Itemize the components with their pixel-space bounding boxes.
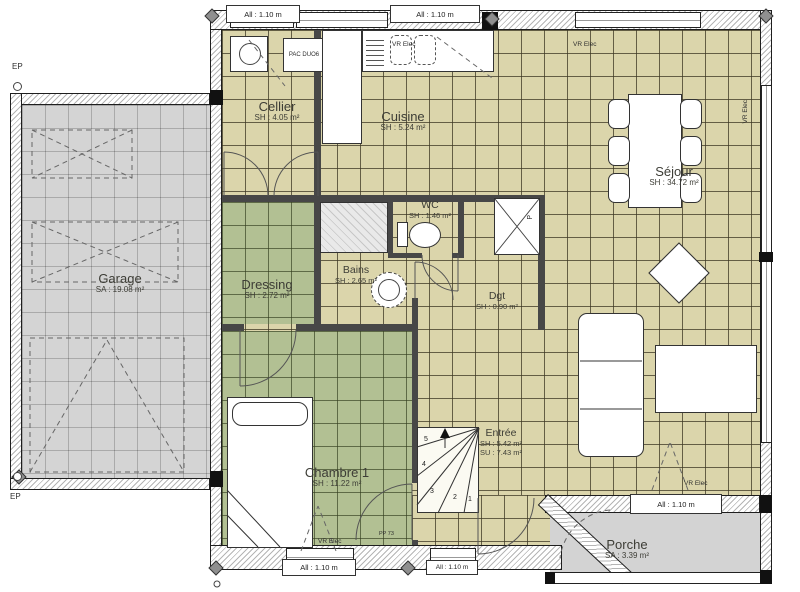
vr-elec-label-sejour-right: VR Elec bbox=[742, 100, 749, 123]
window-sejour-top bbox=[575, 12, 701, 28]
post-top-middle bbox=[482, 12, 498, 30]
toilet-bowl bbox=[409, 222, 441, 248]
room-name: Cuisine bbox=[381, 110, 426, 123]
partition-bains-dgt-stub bbox=[412, 298, 418, 324]
wall-house-front bbox=[210, 545, 562, 570]
room-label-chambre: Chambre 1 SH : 11.22 m² bbox=[305, 466, 369, 489]
window-label-chambre: All : 1.10 m bbox=[282, 559, 356, 576]
post-porche-bottomright bbox=[760, 570, 772, 584]
post-garage-top bbox=[210, 90, 223, 105]
window-cuisine-top bbox=[296, 12, 388, 28]
room-label-bains: Bains SH : 2.65 m² bbox=[335, 265, 377, 285]
toilet-tank bbox=[397, 222, 408, 247]
vr-elec-label-sejour-top: VR Elec bbox=[573, 41, 596, 48]
window-label-top-right: All : 1.10 m bbox=[390, 5, 480, 23]
floor-dressing bbox=[222, 202, 314, 324]
partition-chambre-entree-stub bbox=[412, 540, 418, 545]
washing-machine-drum-icon bbox=[239, 43, 261, 65]
ep-label-bottom: EP bbox=[10, 492, 21, 501]
partition-wc-bottom-a bbox=[388, 253, 422, 258]
wall-garage-bottom bbox=[10, 478, 210, 490]
window-sejour-right bbox=[761, 85, 772, 443]
room-area: SH : 5.42 m² bbox=[480, 439, 522, 448]
room-label-entree: Entrée SH : 5.42 m² SU : 7.43 m² bbox=[480, 428, 522, 457]
dining-chair bbox=[608, 136, 630, 166]
stair-step-4: 4 bbox=[422, 461, 426, 468]
window-label-text: All : 1.10 m bbox=[244, 10, 282, 19]
room-name: WC bbox=[409, 200, 451, 211]
dining-table bbox=[628, 94, 682, 208]
door-size-label-pp73: PP 73 bbox=[379, 531, 394, 537]
room-area: SA : 19.08 m² bbox=[96, 285, 144, 295]
window-label-text: All : 1.10 m bbox=[416, 10, 454, 19]
room-area: SH : 11.22 m² bbox=[305, 479, 369, 489]
kitchen-counter-vertical bbox=[322, 30, 362, 144]
post-porche-bottomleft bbox=[545, 572, 555, 584]
partition-shower-wc bbox=[388, 202, 393, 253]
vr-elec-label-sejour-bottom: VR Elec bbox=[684, 480, 707, 487]
partition-wc-right bbox=[458, 202, 464, 255]
room-area: SA : 3.39 m² bbox=[605, 551, 649, 561]
dining-chair bbox=[680, 99, 702, 129]
room-area: SH : 1.46 m² bbox=[409, 211, 451, 220]
window-label-top-left: All : 1.10 m bbox=[226, 5, 300, 23]
window-sejour-right-mullion bbox=[759, 252, 773, 262]
dining-chair bbox=[608, 173, 630, 203]
dining-chair bbox=[680, 136, 702, 166]
room-name: Séjour bbox=[649, 165, 698, 178]
room-name: Bains bbox=[335, 265, 377, 276]
room-label-sejour: Séjour SH : 34.72 m² bbox=[649, 165, 698, 188]
side-table bbox=[655, 345, 757, 413]
shower bbox=[320, 202, 388, 253]
room-label-dressing: Dressing SH : 2.72 m² bbox=[241, 278, 292, 301]
room-label-porche: Porche SA : 3.39 m² bbox=[605, 538, 649, 561]
room-name: Cellier bbox=[255, 100, 300, 113]
room-name: Entrée bbox=[480, 428, 522, 439]
placard-label: P bbox=[527, 215, 534, 220]
window-label-sejour-porche: All : 1.10 m bbox=[630, 494, 722, 514]
ep-point-bottom bbox=[13, 472, 22, 481]
survey-point-icon bbox=[214, 581, 220, 587]
cooktop-icon bbox=[366, 36, 384, 67]
wall-porche-bottom bbox=[545, 572, 772, 584]
room-area: SH : 2.72 m² bbox=[241, 291, 292, 301]
washbasin-inner bbox=[378, 279, 400, 301]
closet bbox=[494, 198, 540, 255]
room-label-cellier: Cellier SH : 4.05 m² bbox=[255, 100, 300, 123]
room-name: Dgt bbox=[476, 291, 518, 302]
room-area: SH : 0.90 m² bbox=[476, 302, 518, 311]
dining-chair bbox=[608, 99, 630, 129]
post-garage-bottom bbox=[210, 471, 223, 487]
stair-step-2: 2 bbox=[453, 494, 457, 501]
heat-pump-unit: PAC DUO6 bbox=[283, 38, 325, 72]
window-label-text: All : 1.10 m bbox=[436, 564, 469, 571]
room-name: Porche bbox=[605, 538, 649, 551]
room-area-secondary: SU : 7.43 m² bbox=[480, 448, 522, 457]
wall-garage-top bbox=[10, 93, 210, 105]
vr-elec-label-cuisine: VR Elec bbox=[392, 41, 415, 48]
sofa bbox=[578, 313, 644, 457]
window-label-text: All : 1.10 m bbox=[657, 500, 695, 509]
room-area: SH : 34.72 m² bbox=[649, 178, 698, 188]
room-label-wc: WC SH : 1.46 m² bbox=[409, 200, 451, 220]
ep-label-top: EP bbox=[12, 62, 23, 71]
bed-pillow bbox=[232, 402, 308, 426]
partition-dressing-chambre-a bbox=[222, 324, 244, 331]
window-label-text: All : 1.10 m bbox=[300, 563, 338, 572]
ep-point-top bbox=[13, 82, 22, 91]
stair-step-3: 3 bbox=[430, 488, 434, 495]
floor-plan: All : 1.10 m All : 1.10 m All : 1.10 m A… bbox=[0, 0, 800, 592]
window-label-entree: All : 1.10 m bbox=[426, 560, 478, 575]
room-name: Dressing bbox=[241, 278, 292, 291]
room-label-cuisine: Cuisine SH : 5.24 m² bbox=[381, 110, 426, 133]
sink-left-icon bbox=[390, 35, 412, 65]
vr-elec-label-chambre: VR Elec bbox=[318, 538, 341, 545]
partition-wc-bottom-b bbox=[452, 253, 464, 258]
post-porche-topright bbox=[760, 495, 772, 513]
room-label-dgt: Dgt SH : 0.90 m² bbox=[476, 291, 518, 311]
room-area: SH : 5.24 m² bbox=[381, 123, 426, 133]
room-area: SH : 2.65 m² bbox=[335, 276, 377, 285]
sink-right-icon bbox=[414, 35, 436, 65]
heat-pump-label: PAC DUO6 bbox=[289, 52, 319, 58]
stair-step-5: 5 bbox=[424, 436, 428, 443]
room-name: Garage bbox=[96, 272, 144, 285]
partition-bains-chambre-b bbox=[296, 324, 418, 331]
room-name: Chambre 1 bbox=[305, 466, 369, 479]
wall-garage-left bbox=[10, 93, 22, 490]
room-label-garage: Garage SA : 19.08 m² bbox=[96, 272, 144, 295]
stair-step-1: 1 bbox=[468, 496, 472, 503]
room-area: SH : 4.05 m² bbox=[255, 113, 300, 123]
